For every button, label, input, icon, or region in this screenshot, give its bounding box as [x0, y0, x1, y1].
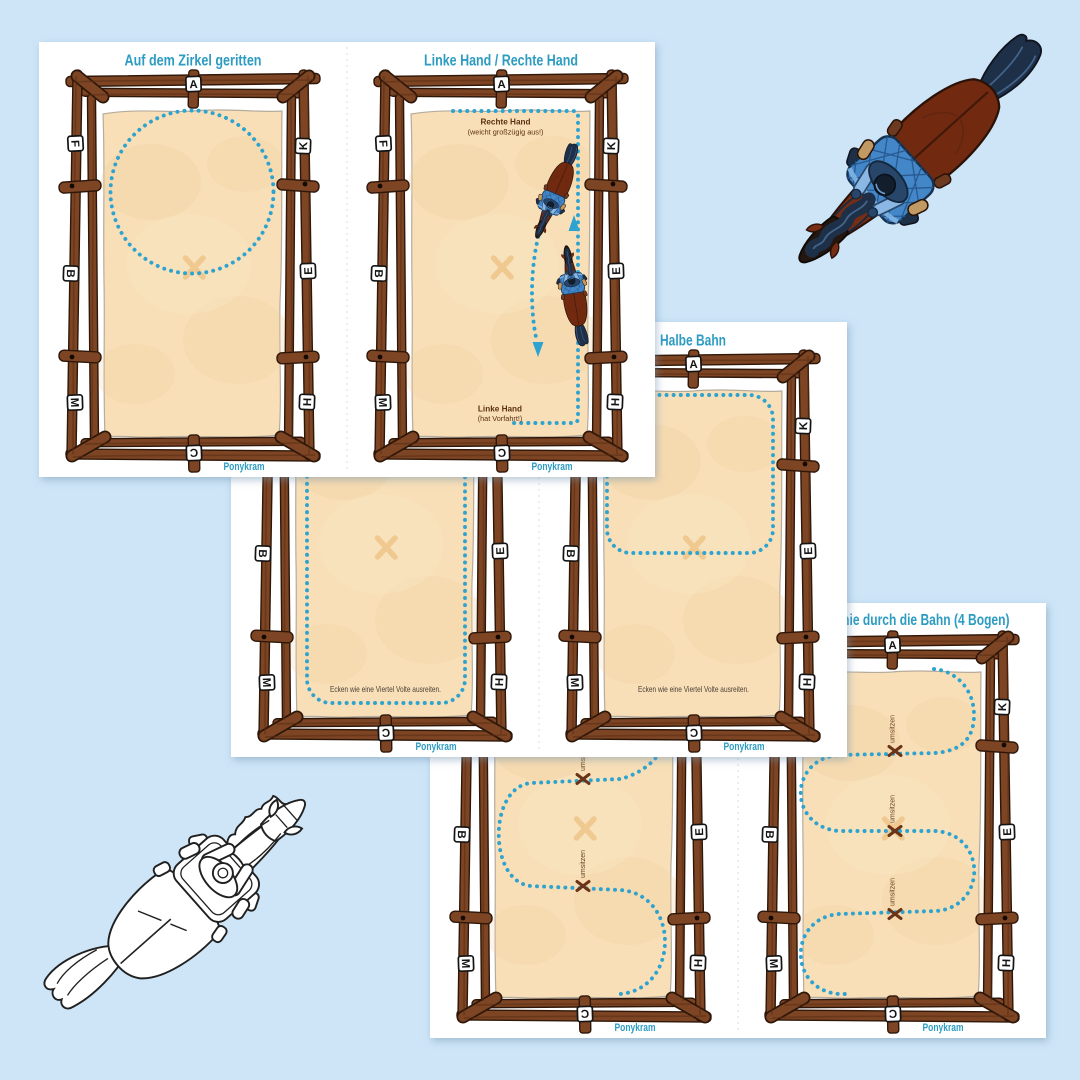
svg-text:Ponykram: Ponykram	[532, 461, 573, 473]
svg-text:(weicht großzügig aus!): (weicht großzügig aus!)	[468, 128, 544, 137]
svg-text:umsitzen: umsitzen	[580, 850, 587, 878]
svg-text:Halbe Bahn: Halbe Bahn	[660, 333, 726, 350]
svg-text:Ponykram: Ponykram	[615, 1022, 656, 1034]
svg-text:Ponykram: Ponykram	[724, 741, 765, 753]
svg-text:(hat Vorfahrt!): (hat Vorfahrt!)	[478, 414, 523, 423]
svg-text:Rechte Hand: Rechte Hand	[480, 118, 530, 127]
svg-text:umsitzen: umsitzen	[890, 715, 897, 743]
svg-text:Ponykram: Ponykram	[416, 741, 457, 753]
svg-text:Linke Hand / Rechte Hand: Linke Hand / Rechte Hand	[424, 53, 578, 70]
svg-text:Ecken wie eine Viertel Volte a: Ecken wie eine Viertel Volte ausreiten.	[638, 684, 749, 694]
svg-text:umsitzen: umsitzen	[890, 795, 897, 823]
svg-text:Linke Hand: Linke Hand	[478, 405, 522, 414]
svg-text:Ponykram: Ponykram	[923, 1022, 964, 1034]
svg-text:Ecken wie eine Viertel Volte a: Ecken wie eine Viertel Volte ausreiten.	[330, 684, 441, 694]
svg-text:umsitzen: umsitzen	[890, 878, 897, 906]
svg-text:Auf dem Zirkel geritten: Auf dem Zirkel geritten	[125, 53, 262, 70]
svg-text:Ponykram: Ponykram	[224, 461, 265, 473]
